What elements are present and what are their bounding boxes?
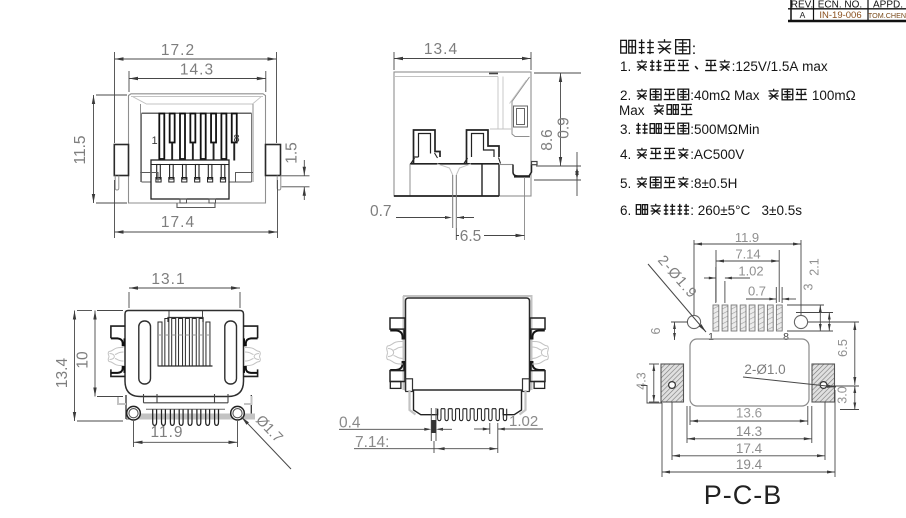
svg-text:A: A [800,10,806,20]
svg-text:13.4: 13.4 [54,358,71,389]
svg-text:4.3: 4.3 [635,372,649,389]
svg-text:13.1: 13.1 [151,271,185,288]
svg-text:1: 1 [151,135,157,147]
svg-text:0.7: 0.7 [370,203,392,220]
svg-text:6.: 6. [620,203,635,218]
svg-text:Ø1.7: Ø1.7 [252,412,285,446]
svg-text:6: 6 [649,327,663,334]
svg-text:6.5: 6.5 [460,228,482,245]
svg-text:13.6: 13.6 [736,406,762,421]
svg-text:1.02: 1.02 [509,413,538,430]
svg-text:7.14: 7.14 [735,247,760,262]
svg-text:IN-19-006: IN-19-006 [819,10,861,21]
svg-text:APPD.: APPD. [873,0,903,10]
svg-text:17.2: 17.2 [161,42,195,59]
svg-text:1.: 1. [620,59,635,74]
svg-text:1.5: 1.5 [284,142,301,164]
svg-text:14.3: 14.3 [736,424,762,439]
svg-text:2-Ø1.0: 2-Ø1.0 [744,362,785,377]
svg-text:: 260±5°C 3±0.5s: : 260±5°C 3±0.5s [690,203,802,218]
svg-text::500MΩMin: :500MΩMin [690,122,759,137]
svg-text:17.4: 17.4 [161,214,195,231]
svg-text::125V/1.5A max: :125V/1.5A max [732,59,828,74]
svg-text:3.: 3. [620,122,635,137]
svg-text:11.9: 11.9 [735,230,759,245]
svg-text::AC500V: :AC500V [690,147,744,162]
svg-text:Max: Max [619,103,652,118]
svg-text:0.7: 0.7 [748,284,766,299]
svg-text:14.3: 14.3 [180,62,214,79]
svg-text:19.4: 19.4 [736,457,763,472]
svg-text:5.: 5. [620,176,635,191]
svg-text:1.02: 1.02 [738,264,763,279]
svg-text::8±0.5H: :8±0.5H [690,176,737,191]
svg-text:TOM.CHEN: TOM.CHEN [868,11,906,20]
svg-text::: : [692,41,696,58]
svg-text:8.6: 8.6 [539,129,556,151]
svg-text:2.1: 2.1 [808,258,822,275]
svg-text:17.4: 17.4 [736,441,763,456]
svg-text:1: 1 [708,331,714,343]
svg-text:8: 8 [783,331,789,343]
svg-text:10: 10 [75,351,92,369]
svg-text:6.5: 6.5 [835,339,850,357]
svg-text:2-Ø1.9: 2-Ø1.9 [654,253,700,302]
svg-text:0.9: 0.9 [556,117,573,139]
svg-text:11.9: 11.9 [150,424,183,441]
svg-text::40mΩ Max: :40mΩ Max [690,88,767,103]
svg-text:11.5: 11.5 [72,135,89,164]
svg-text:100mΩ: 100mΩ [808,88,856,103]
svg-text:P-C-B: P-C-B [704,480,783,510]
svg-text:13.4: 13.4 [424,41,458,58]
svg-text:3: 3 [802,283,816,290]
svg-text:REV.: REV. [791,0,813,10]
svg-text:ECN. NO.: ECN. NO. [818,0,862,10]
svg-text:4.: 4. [620,147,635,162]
svg-text:8: 8 [233,133,239,145]
svg-text:3.0: 3.0 [836,386,850,403]
svg-text:2.: 2. [620,88,635,103]
